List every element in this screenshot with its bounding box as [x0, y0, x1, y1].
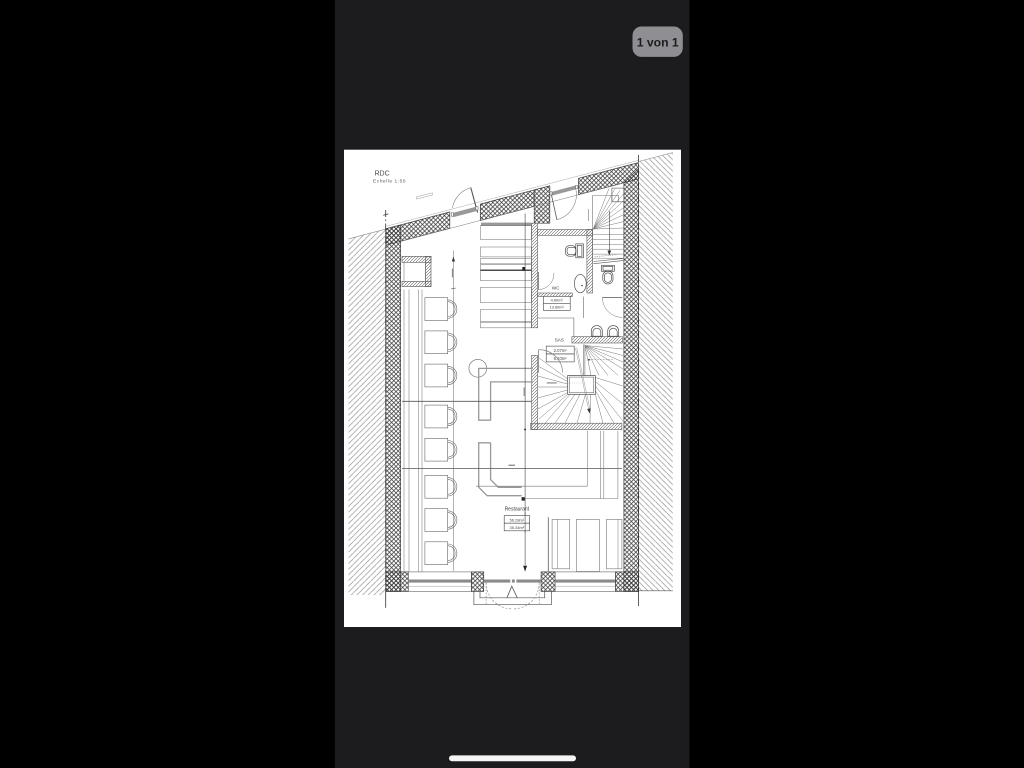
svg-text:WC: WC — [552, 286, 560, 291]
svg-text:Restaurant: Restaurant — [505, 506, 530, 512]
svg-text:13.80m²: 13.80m² — [550, 305, 565, 310]
svg-text:1 von 1: 1 von 1 — [637, 36, 679, 50]
svg-text:SAS: SAS — [555, 337, 564, 342]
svg-text:2.07m²: 2.07m² — [554, 348, 568, 353]
svg-text:35.34m²: 35.34m² — [510, 525, 525, 530]
svg-text:RDC: RDC — [375, 170, 390, 177]
svg-text:Echelle 1:50: Echelle 1:50 — [373, 179, 406, 185]
svg-text:4.60m²: 4.60m² — [551, 298, 564, 303]
svg-text:56.28m²: 56.28m² — [510, 517, 525, 522]
